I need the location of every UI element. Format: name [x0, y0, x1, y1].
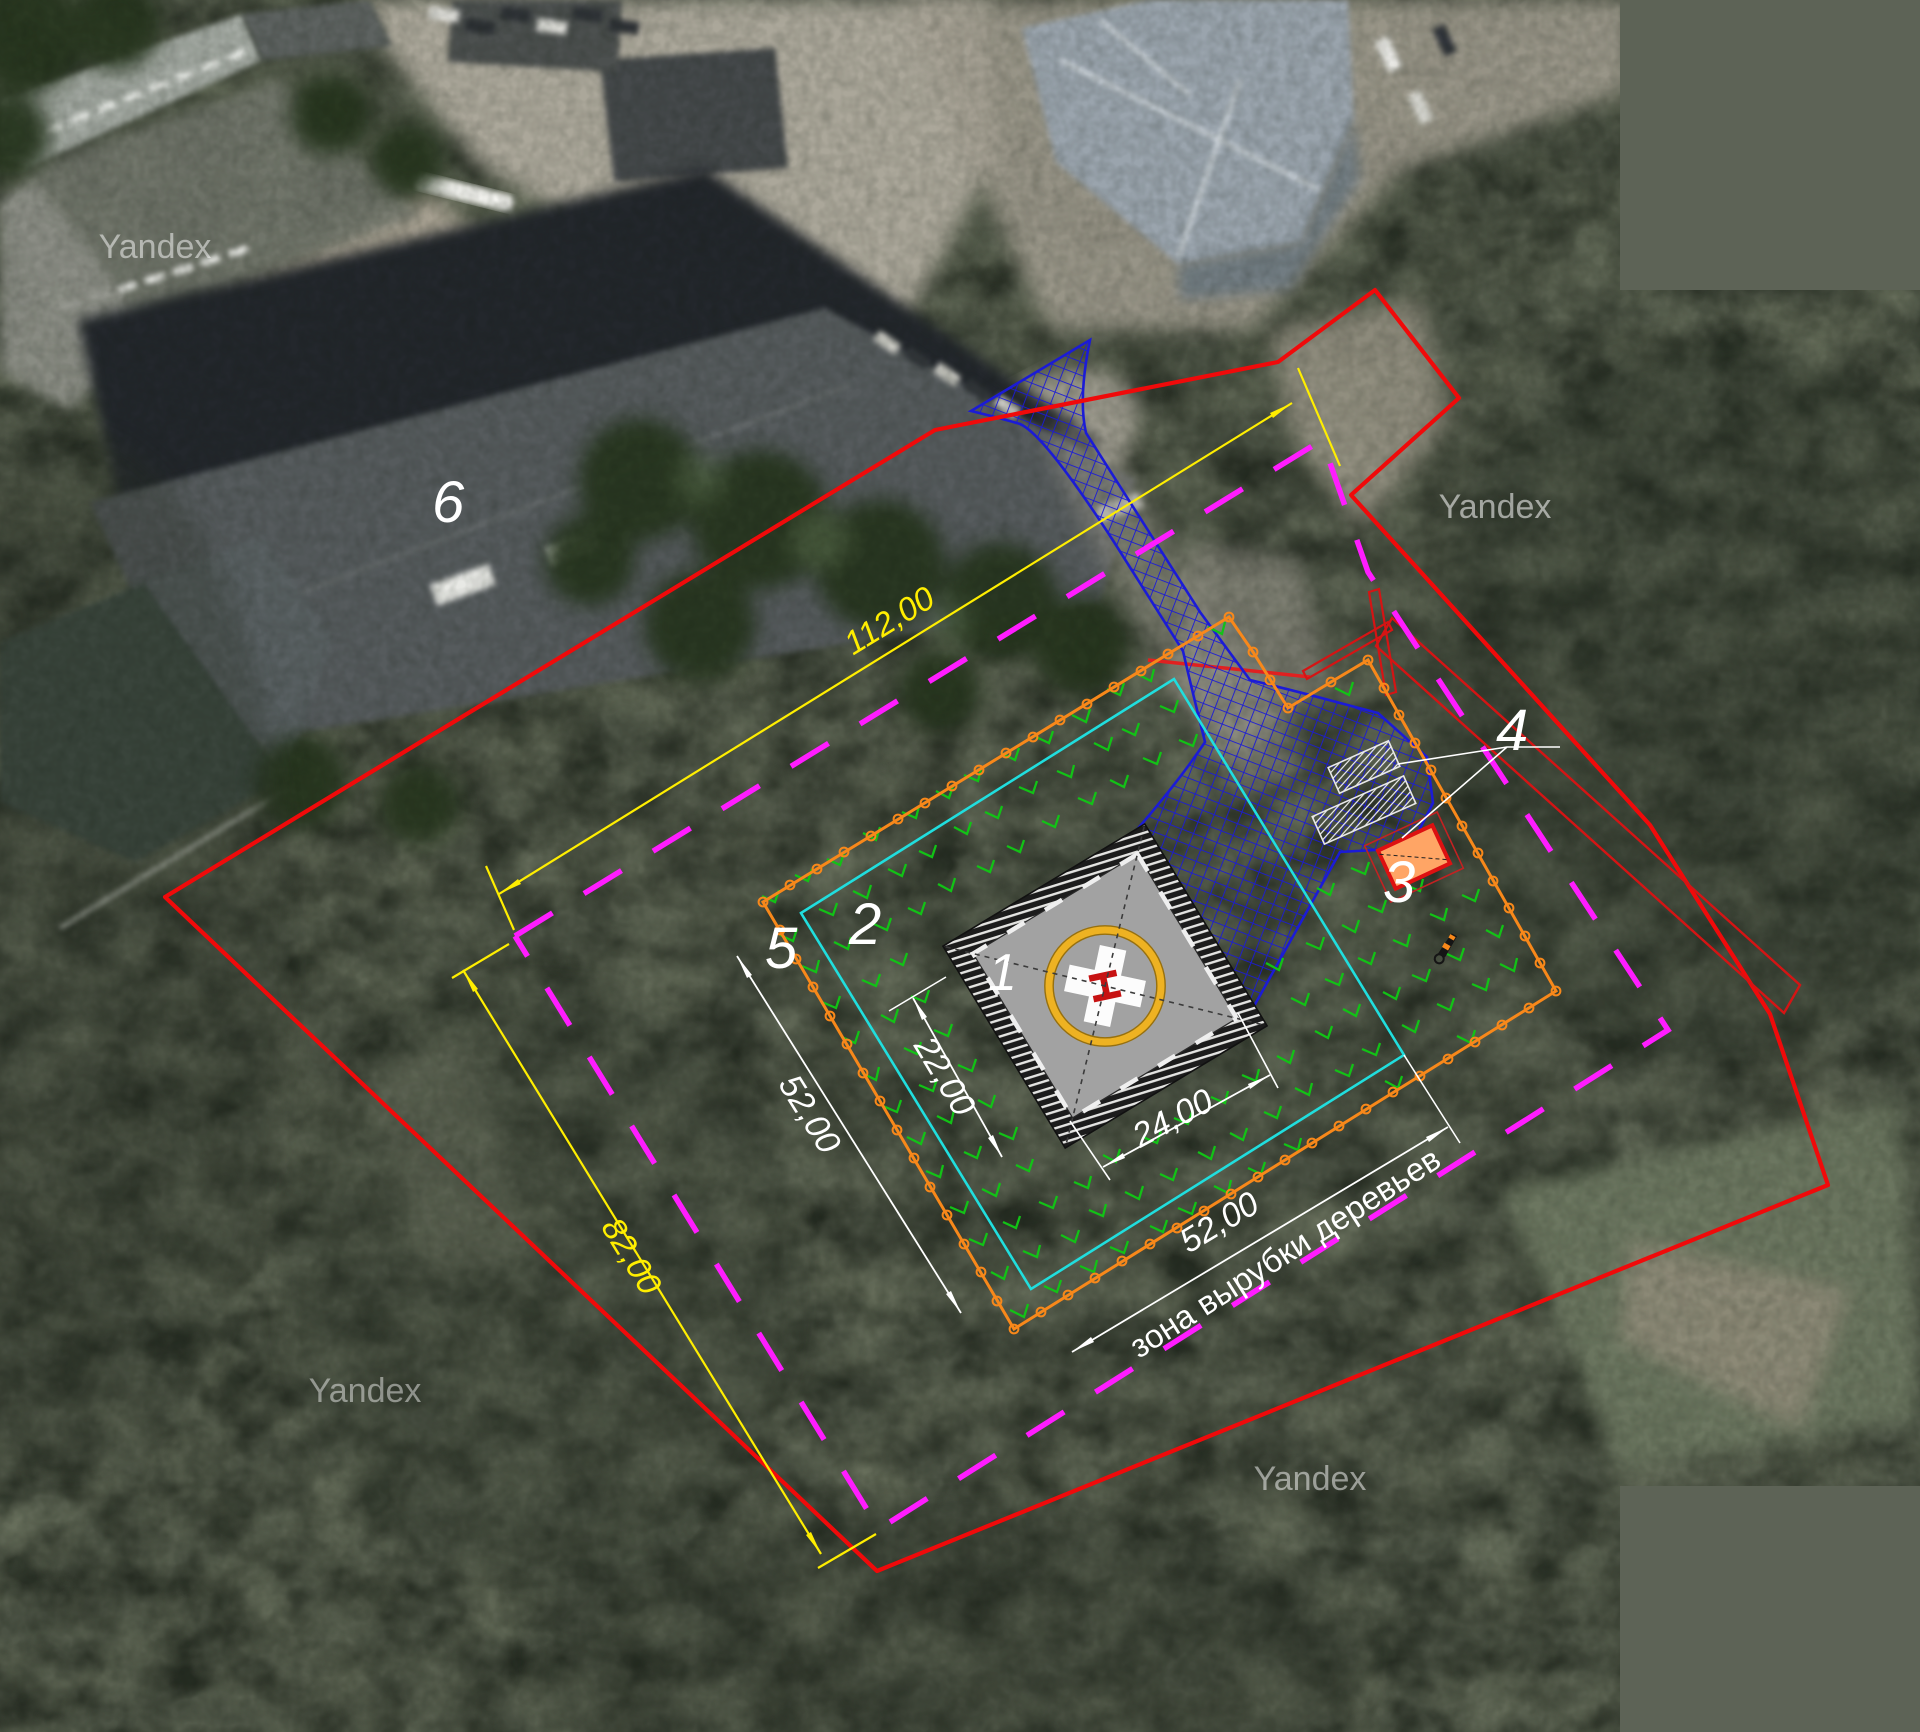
svg-text:Yandex: Yandex [99, 228, 212, 266]
svg-text:1: 1 [988, 944, 1017, 1002]
svg-text:5: 5 [765, 916, 798, 981]
svg-text:2: 2 [848, 892, 881, 957]
svg-text:3: 3 [1383, 850, 1415, 915]
svg-text:6: 6 [432, 470, 465, 535]
svg-text:4: 4 [1496, 698, 1528, 763]
svg-text:Yandex: Yandex [309, 1372, 422, 1410]
svg-text:Yandex: Yandex [1254, 1460, 1367, 1498]
svg-text:Yandex: Yandex [1439, 488, 1552, 526]
